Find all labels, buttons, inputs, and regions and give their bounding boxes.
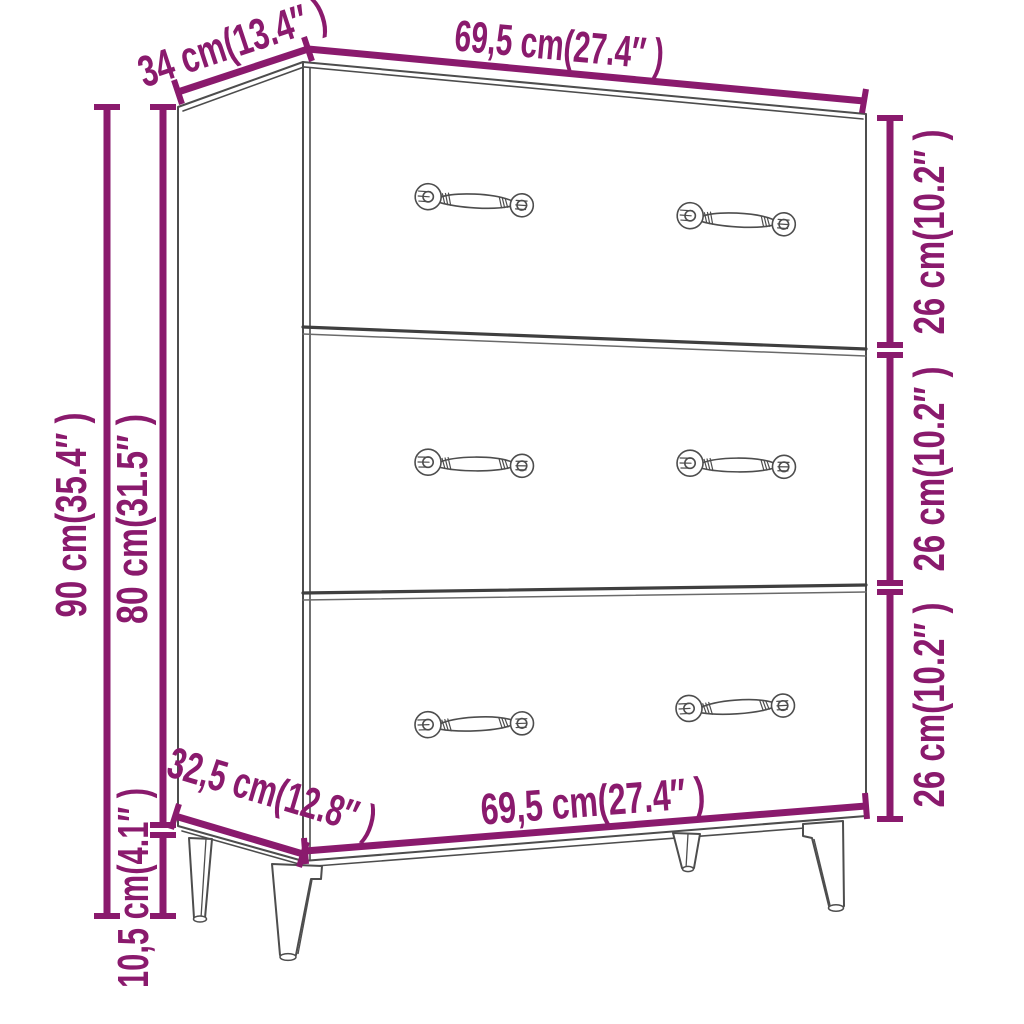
label-top-width: 69,5 cm(27.4″ ) [453, 11, 667, 79]
leg-foot [280, 954, 296, 961]
label-total-height: 90 cm(35.4″ ) [47, 413, 96, 618]
label-drawer-top-height: 26 cm(10.2″ ) [905, 130, 954, 335]
leg-foot [683, 866, 694, 871]
leg-foot [829, 905, 844, 911]
leg-foot [194, 916, 207, 922]
drawer-top [303, 62, 866, 349]
leg-front-right [803, 821, 844, 911]
leg-front-left [272, 864, 322, 960]
leg-back-left [189, 838, 212, 922]
cabinet-side-panel [178, 62, 303, 861]
label-body-height: 80 cm(31.5″ ) [108, 414, 157, 624]
leg-back-right [673, 833, 700, 872]
label-drawer-middle-height: 26 cm(10.2″ ) [905, 367, 954, 572]
sideboard-dimension-drawing: 69,5 cm(27.4″ ) 34 cm(13.4″ ) 26 cm(10.2… [0, 0, 1024, 1024]
label-drawer-bottom-height: 26 cm(10.2″ ) [905, 603, 954, 808]
dimension-diagram: 69,5 cm(27.4″ ) 34 cm(13.4″ ) 26 cm(10.2… [0, 0, 1024, 1024]
label-leg-height: 10,5 cm(4.1″ ) [109, 788, 158, 988]
